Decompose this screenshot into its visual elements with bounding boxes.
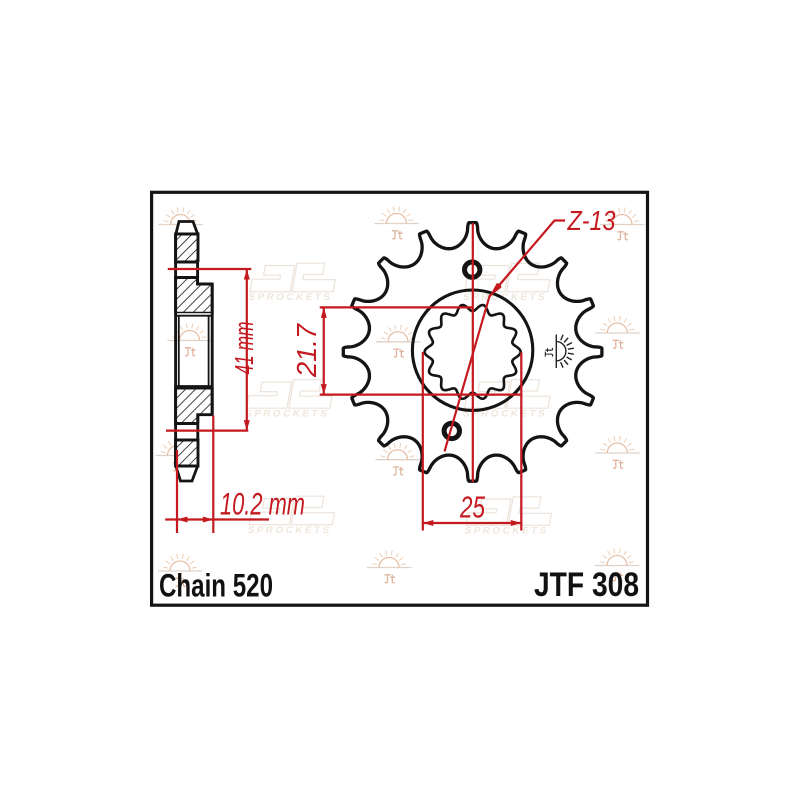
svg-text:SPROCKETS: SPROCKETS: [244, 408, 330, 419]
svg-text:SPROCKETS: SPROCKETS: [247, 525, 333, 536]
svg-text:Z-13: Z-13: [567, 205, 616, 236]
svg-text:21.7: 21.7: [291, 323, 322, 378]
svg-text:SPROCKETS: SPROCKETS: [248, 292, 334, 303]
svg-text:Chain 520: Chain 520: [159, 568, 273, 604]
svg-text:10.2 mm: 10.2 mm: [220, 486, 305, 522]
svg-text:JTF 308: JTF 308: [534, 566, 639, 604]
svg-text:25: 25: [459, 490, 485, 525]
svg-text:41 mm: 41 mm: [231, 322, 259, 375]
svg-text:SPROCKETS: SPROCKETS: [464, 525, 550, 536]
